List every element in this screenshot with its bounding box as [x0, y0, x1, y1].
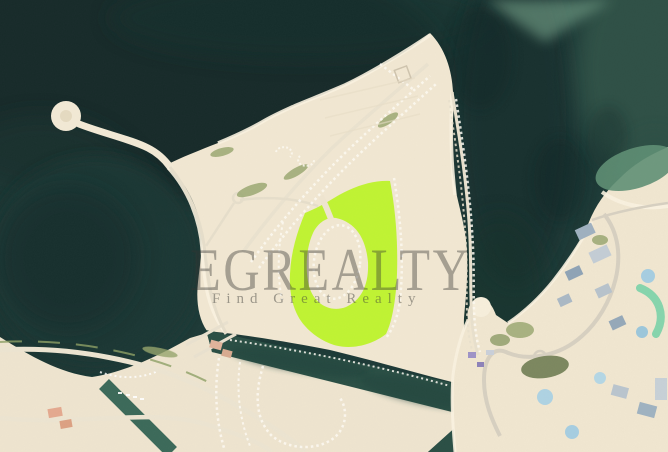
satellite-map: EGREALTY Find Great Realty — [0, 0, 668, 452]
texture-overlay — [0, 0, 668, 452]
map-canvas — [0, 0, 668, 452]
